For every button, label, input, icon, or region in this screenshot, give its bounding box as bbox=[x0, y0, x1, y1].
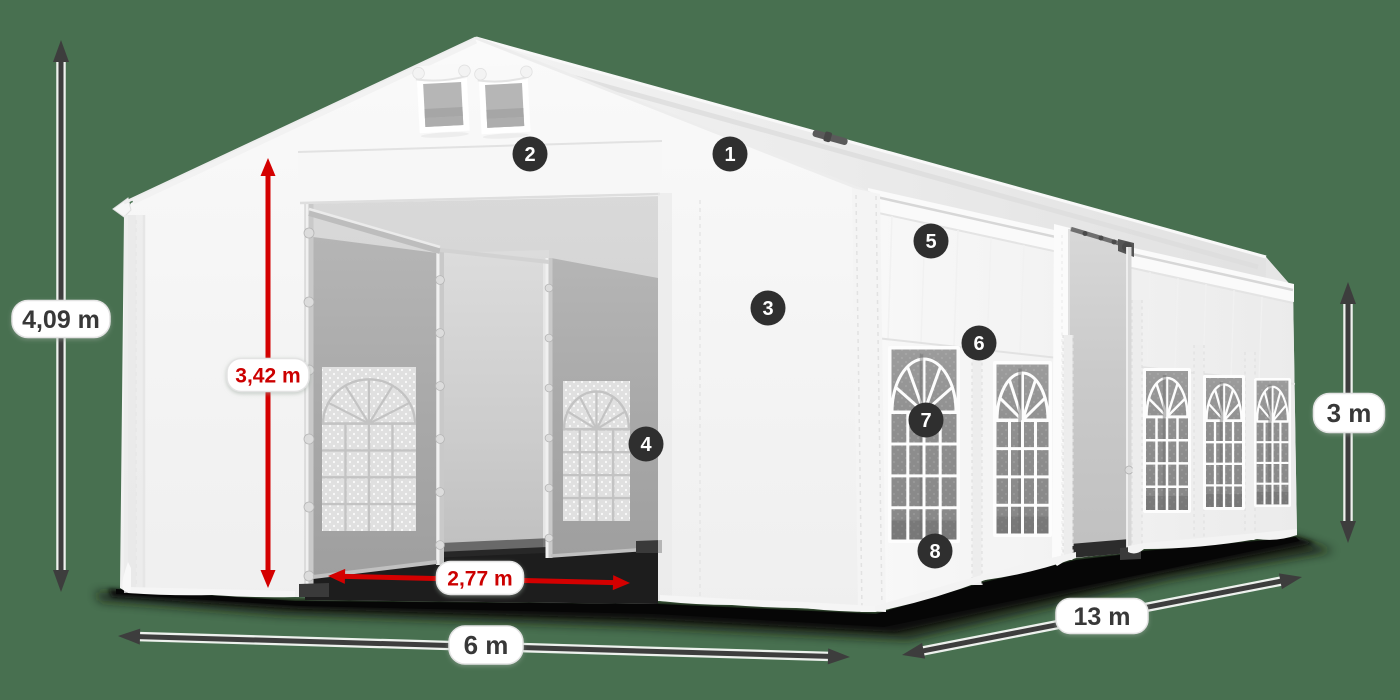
svg-text:3 m: 3 m bbox=[1327, 398, 1372, 428]
svg-text:6: 6 bbox=[973, 333, 984, 355]
svg-text:5: 5 bbox=[925, 231, 936, 253]
svg-text:8: 8 bbox=[929, 541, 940, 563]
svg-text:6 m: 6 m bbox=[464, 630, 509, 660]
svg-text:4,09 m: 4,09 m bbox=[22, 306, 100, 334]
svg-text:4: 4 bbox=[640, 434, 652, 456]
svg-text:2: 2 bbox=[524, 144, 535, 166]
svg-text:3: 3 bbox=[762, 298, 773, 320]
svg-text:1: 1 bbox=[724, 144, 735, 166]
svg-text:2,77 m: 2,77 m bbox=[447, 567, 512, 590]
svg-text:13 m: 13 m bbox=[1074, 603, 1131, 631]
svg-text:3,42 m: 3,42 m bbox=[235, 364, 300, 387]
svg-text:7: 7 bbox=[920, 410, 931, 432]
